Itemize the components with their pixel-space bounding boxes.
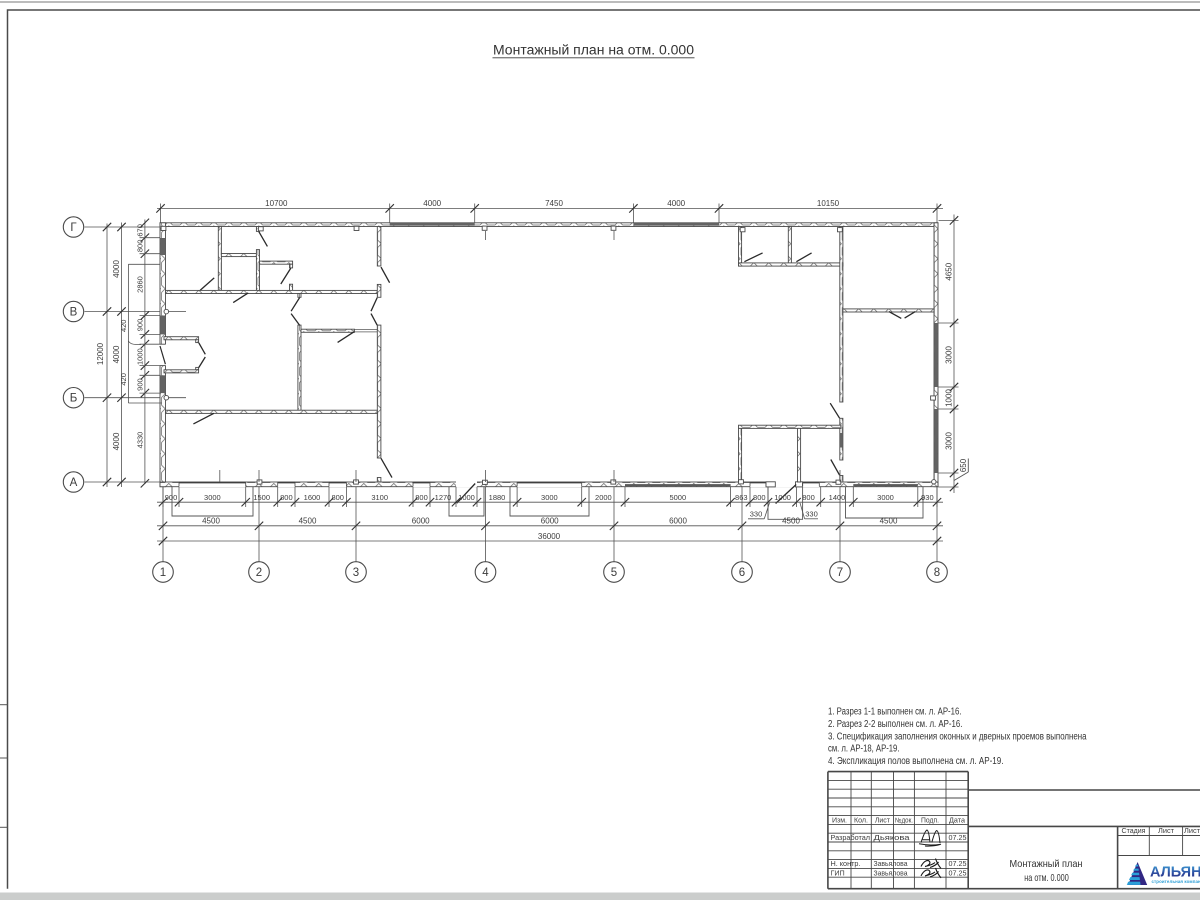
svg-text:930: 930 [921, 493, 934, 502]
svg-text:Завьялова: Завьялова [874, 859, 908, 868]
svg-text:Завьялова: Завьялова [874, 869, 908, 878]
svg-text:6000: 6000 [412, 516, 430, 525]
svg-text:1270: 1270 [435, 493, 452, 502]
svg-text:№док.: №док. [895, 817, 913, 824]
svg-text:Подп.: Подп. [921, 817, 939, 824]
svg-text:1000: 1000 [458, 493, 475, 502]
svg-text:3: 3 [353, 567, 359, 579]
svg-text:1: 1 [160, 567, 166, 579]
svg-text:420: 420 [119, 320, 128, 333]
svg-text:36000: 36000 [538, 532, 561, 541]
svg-text:1. Разрез 1-1 выполнен см. л.: 1. Разрез 1-1 выполнен см. л. АР-16. [828, 707, 962, 718]
svg-text:10150: 10150 [817, 199, 840, 208]
svg-text:4000: 4000 [423, 199, 441, 208]
svg-text:Листов: Листов [1184, 826, 1200, 835]
svg-text:7: 7 [837, 567, 843, 579]
svg-text:на отм. 0.000: на отм. 0.000 [1024, 872, 1069, 884]
svg-text:Лист: Лист [1158, 826, 1175, 835]
svg-text:670: 670 [135, 224, 144, 237]
svg-text:Монтажный план на отм. 0.000: Монтажный план на отм. 0.000 [493, 43, 694, 58]
svg-text:3000: 3000 [945, 346, 954, 364]
svg-text:6000: 6000 [669, 516, 687, 525]
svg-text:800: 800 [135, 240, 144, 253]
svg-text:07.25: 07.25 [949, 833, 967, 842]
svg-text:Б: Б [70, 393, 78, 405]
svg-text:330: 330 [750, 509, 763, 518]
svg-text:4: 4 [482, 567, 489, 579]
svg-text:4000: 4000 [112, 345, 121, 363]
svg-text:см. л. АР-18, АР-19.: см. л. АР-18, АР-19. [828, 744, 900, 755]
svg-text:3000: 3000 [945, 432, 954, 450]
svg-text:3100: 3100 [371, 493, 388, 502]
svg-text:650: 650 [959, 458, 968, 472]
svg-text:4000: 4000 [112, 432, 121, 450]
svg-text:800: 800 [753, 493, 766, 502]
svg-text:Стадия: Стадия [1122, 826, 1146, 835]
svg-text:3000: 3000 [877, 493, 894, 502]
svg-text:1000: 1000 [774, 493, 791, 502]
svg-text:3. Спецификация заполнения око: 3. Спецификация заполнения оконных и две… [828, 731, 1087, 742]
svg-text:12000: 12000 [96, 342, 105, 365]
svg-text:1500: 1500 [253, 493, 270, 502]
svg-text:3000: 3000 [204, 493, 221, 502]
svg-text:А: А [70, 477, 78, 489]
svg-text:1600: 1600 [304, 493, 321, 502]
svg-text:900: 900 [135, 378, 144, 391]
svg-text:Лист: Лист [875, 817, 891, 824]
svg-text:863: 863 [735, 493, 748, 502]
svg-text:4500: 4500 [782, 516, 800, 525]
svg-text:800: 800 [802, 493, 815, 502]
svg-text:2. Разрез 2-2 выполнен см. л.: 2. Разрез 2-2 выполнен см. л. АР-16. [828, 719, 963, 730]
svg-text:800: 800 [331, 493, 344, 502]
svg-text:Г: Г [70, 222, 77, 234]
svg-text:420: 420 [119, 373, 128, 386]
svg-text:4330: 4330 [135, 432, 144, 449]
svg-text:5000: 5000 [669, 493, 686, 502]
svg-text:10700: 10700 [265, 199, 288, 208]
svg-text:2: 2 [256, 567, 262, 579]
svg-text:Дьякова: Дьякова [874, 833, 910, 842]
svg-text:4. Экспликация полов выполнена: 4. Экспликация полов выполнена см. л. АР… [828, 756, 1004, 767]
svg-text:07.25: 07.25 [949, 859, 967, 868]
svg-text:Изм.: Изм. [832, 817, 847, 824]
svg-text:4000: 4000 [667, 199, 685, 208]
svg-text:800: 800 [280, 493, 293, 502]
svg-text:1400: 1400 [829, 493, 846, 502]
svg-text:6: 6 [739, 567, 745, 579]
svg-text:1000: 1000 [135, 348, 144, 365]
svg-text:строительная компания: строительная компания [1152, 879, 1200, 884]
svg-text:Кол.: Кол. [854, 817, 868, 824]
svg-text:5: 5 [611, 567, 617, 579]
svg-text:900: 900 [165, 493, 178, 502]
svg-text:4650: 4650 [945, 262, 954, 280]
svg-text:1000: 1000 [945, 389, 954, 407]
svg-text:4000: 4000 [112, 260, 121, 278]
svg-text:3000: 3000 [541, 493, 558, 502]
svg-text:07.25: 07.25 [949, 869, 967, 878]
svg-text:900: 900 [135, 319, 144, 332]
svg-text:Разработал: Разработал [831, 833, 871, 842]
svg-text:4500: 4500 [299, 516, 317, 525]
svg-text:4500: 4500 [880, 516, 898, 525]
svg-text:4500: 4500 [202, 516, 220, 525]
svg-text:2860: 2860 [135, 276, 144, 293]
svg-text:ГИП: ГИП [831, 869, 845, 878]
svg-text:800: 800 [415, 493, 428, 502]
svg-text:330: 330 [805, 509, 818, 518]
svg-text:Н. контр.: Н. контр. [831, 859, 861, 868]
svg-text:Монтажный план: Монтажный план [1010, 858, 1083, 870]
svg-text:2000: 2000 [595, 493, 612, 502]
svg-text:6000: 6000 [541, 516, 559, 525]
svg-text:8: 8 [934, 567, 940, 579]
svg-text:В: В [70, 307, 78, 319]
svg-text:1880: 1880 [489, 493, 506, 502]
svg-text:Дата: Дата [949, 817, 965, 824]
svg-text:7450: 7450 [545, 199, 563, 208]
